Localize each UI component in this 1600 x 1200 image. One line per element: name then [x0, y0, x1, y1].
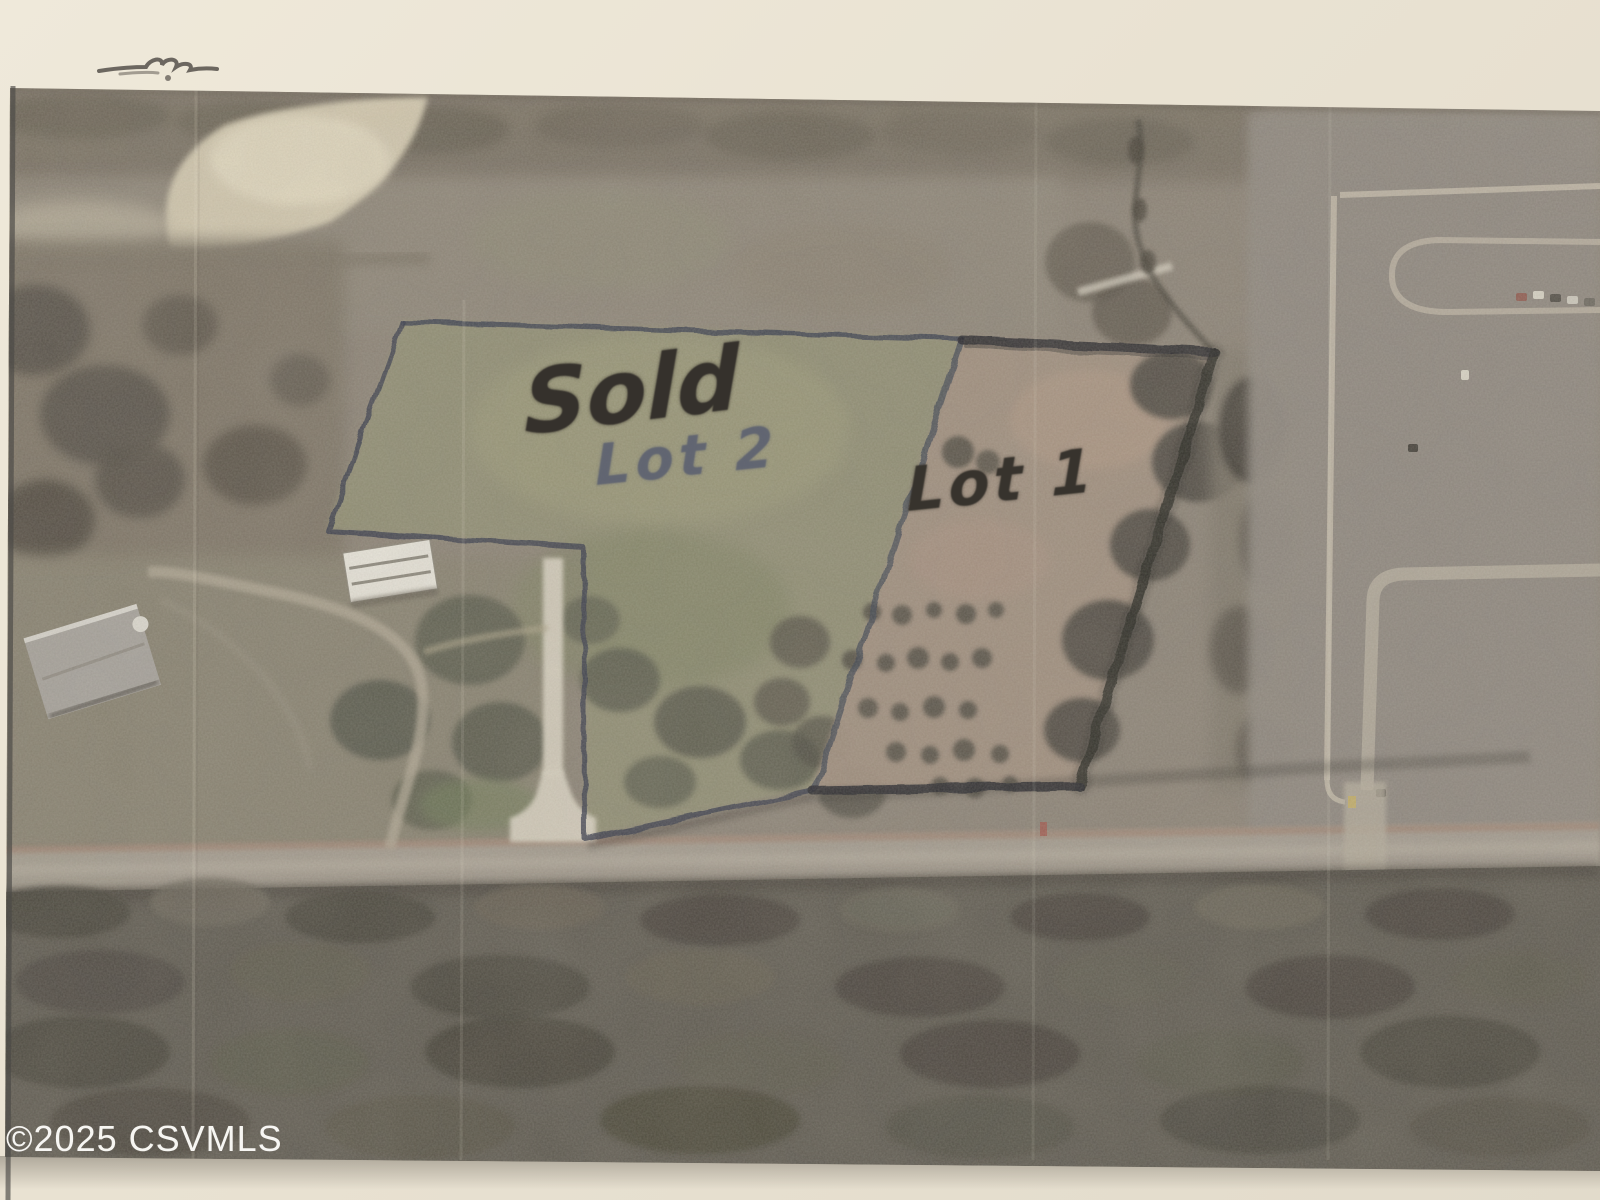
- watermark: ©2025 CSVMLS: [6, 1118, 283, 1160]
- pen-scribble: [99, 59, 217, 81]
- aerial-photo: [0, 0, 1600, 1200]
- scanned-aerial-photo-page: Sold Lot 2 Lot 1 ©2025 CSVMLS: [0, 0, 1600, 1200]
- grain-dark: [0, 80, 1600, 1180]
- photo-region: [0, 80, 1600, 1180]
